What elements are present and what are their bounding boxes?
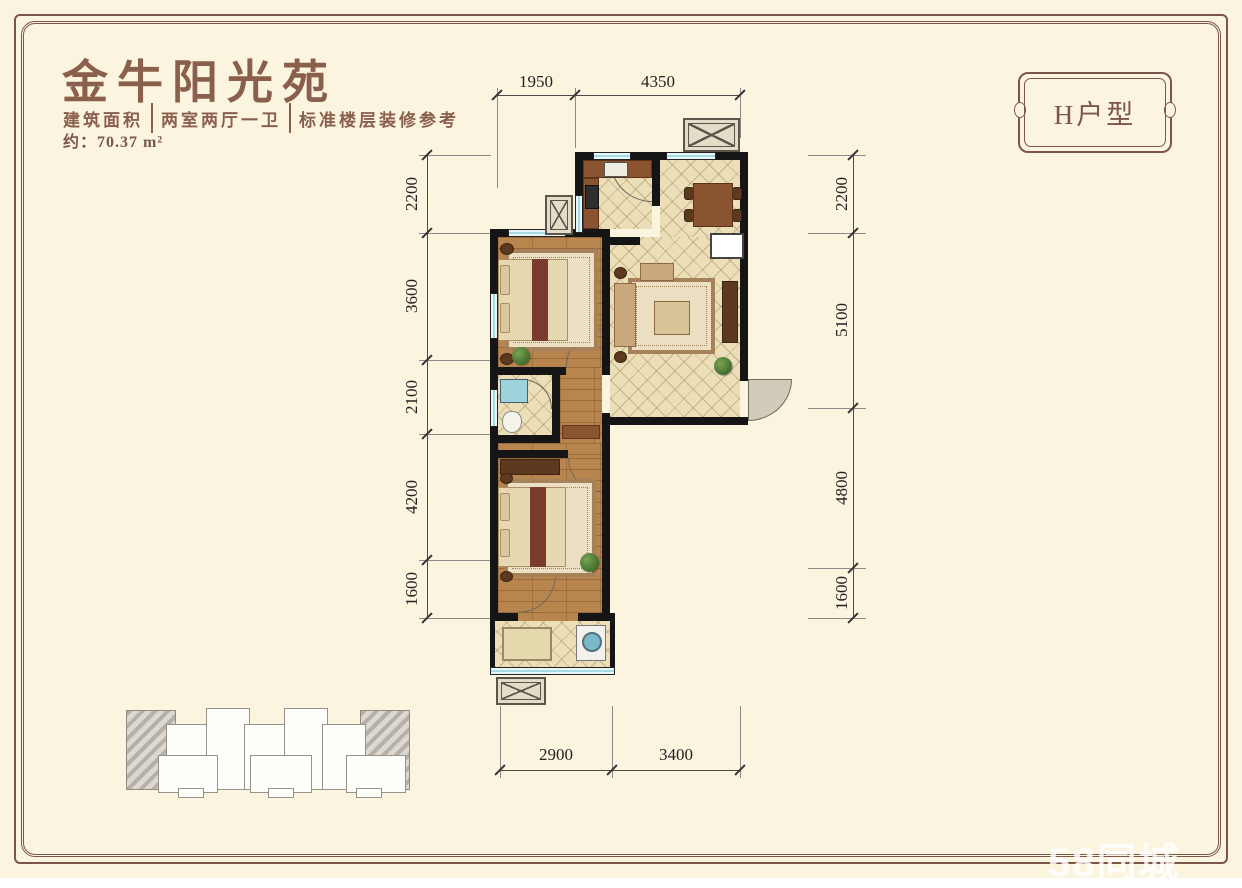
entry-cabinet xyxy=(710,233,744,259)
building-key-plan xyxy=(118,700,418,802)
nightstand xyxy=(500,571,513,582)
wall xyxy=(490,450,568,458)
dimension-line xyxy=(853,155,854,618)
extension-line xyxy=(419,360,491,361)
key-unit xyxy=(178,788,204,798)
unit-type-label: H户型 xyxy=(1054,93,1137,132)
key-unit xyxy=(356,788,382,798)
wall xyxy=(490,621,495,667)
dimension-line xyxy=(500,770,740,771)
extension-line xyxy=(419,434,491,435)
note-label: 标准楼层装修参考 xyxy=(299,106,459,131)
pillow xyxy=(500,265,510,295)
extension-line xyxy=(419,560,491,561)
shoe-cabinet xyxy=(562,425,600,439)
side-table xyxy=(614,267,627,279)
side-table xyxy=(614,351,627,363)
extension-line xyxy=(419,618,491,619)
wall xyxy=(610,621,615,667)
key-unit xyxy=(268,788,294,798)
toilet xyxy=(502,411,522,433)
x-icon xyxy=(550,200,568,230)
dimension-line xyxy=(497,95,740,96)
floor-plan xyxy=(488,113,796,713)
plant xyxy=(512,347,530,365)
watermark: 58同城 xyxy=(1048,830,1181,888)
sofa xyxy=(614,283,636,347)
bed-runner xyxy=(532,259,548,341)
armchair xyxy=(640,263,674,281)
dimension-label: 1600 xyxy=(833,563,851,623)
kitchen-stove xyxy=(585,185,599,209)
pillow xyxy=(500,529,510,557)
kitchen-sink xyxy=(604,162,628,177)
extension-line xyxy=(808,408,866,409)
window xyxy=(666,152,716,160)
dining-table xyxy=(693,183,733,227)
ac-unit-box xyxy=(545,195,573,235)
dining-chair xyxy=(732,209,742,222)
dimension-label: 1950 xyxy=(506,73,566,91)
dimension-label: 2900 xyxy=(526,746,586,764)
plant xyxy=(714,357,732,375)
dimension-label: 2200 xyxy=(403,164,421,224)
window xyxy=(593,152,631,160)
extension-line xyxy=(419,155,491,156)
plant xyxy=(580,553,599,572)
wall xyxy=(602,413,610,621)
ac-unit-box xyxy=(683,118,740,152)
extension-line xyxy=(808,233,866,234)
coffee-table xyxy=(654,301,690,335)
washer-drum-icon xyxy=(582,632,602,652)
wall xyxy=(578,613,615,621)
dimension-label: 4350 xyxy=(628,73,688,91)
dimension-label: 4200 xyxy=(403,467,421,527)
bed-runner xyxy=(530,487,546,567)
extension-line xyxy=(419,233,491,234)
ac-unit-box xyxy=(496,677,546,705)
unit-type-badge: H户型 xyxy=(1018,72,1172,153)
dimension-label: 2200 xyxy=(833,164,851,224)
tv-cabinet xyxy=(722,281,738,343)
dimension-label: 2100 xyxy=(403,367,421,427)
dimension-label: 3400 xyxy=(646,746,706,764)
window xyxy=(490,293,498,339)
page-background: 金牛阳光苑 建筑面积 两室两厅一卫 标准楼层装修参考 约：70.37 m² H户… xyxy=(0,0,1242,878)
dimension-label: 5100 xyxy=(833,290,851,350)
shower xyxy=(500,379,528,403)
x-icon xyxy=(688,123,735,147)
entry-door xyxy=(748,379,792,421)
pillow xyxy=(500,493,510,521)
nightstand xyxy=(500,243,514,255)
window xyxy=(490,667,615,675)
washing-machine xyxy=(576,625,606,661)
dimension-label: 1600 xyxy=(403,559,421,619)
wall xyxy=(652,158,660,206)
window xyxy=(575,195,583,233)
dimension-label: 3600 xyxy=(403,266,421,326)
wall xyxy=(602,229,610,375)
wall xyxy=(552,367,560,443)
extension-line xyxy=(808,155,866,156)
balcony-mat xyxy=(502,627,552,661)
dimension-line xyxy=(427,155,428,618)
wall xyxy=(490,435,560,443)
unit-layout-label: 两室两厅一卫 xyxy=(161,106,281,131)
wall xyxy=(490,613,518,621)
wall xyxy=(740,152,748,381)
wall xyxy=(610,237,640,245)
wall xyxy=(602,417,748,425)
dining-chair xyxy=(732,187,742,200)
area-label: 建筑面积 xyxy=(63,106,143,131)
x-icon xyxy=(501,682,541,700)
divider xyxy=(289,103,291,133)
pillow xyxy=(500,303,510,333)
window xyxy=(490,389,498,427)
area-value: 约：70.37 m² xyxy=(63,128,163,152)
dimension-label: 4800 xyxy=(833,458,851,518)
nightstand xyxy=(500,473,513,484)
